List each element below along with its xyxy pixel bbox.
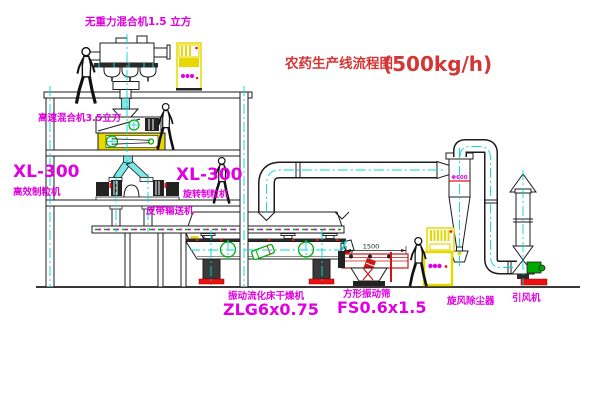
label-granulator-right-name: 旋转制粒机 [182,188,228,200]
y-chute [114,156,149,180]
exhaust-duct-dryer-to-cyclone [267,162,450,213]
title-capacity: (500kg/h) [383,52,492,76]
label-granulator-left-name: 高效制粒机 [13,186,61,198]
label-dryer-model: ZLG6x0.75 [223,300,319,319]
cad-drawing-canvas: Φ600 1500 [0,0,600,403]
label-cyclone: 旋风除尘器 [446,295,495,307]
label-screen-model: FS0.6x1.5 [337,298,426,317]
duct-reducer [437,162,450,179]
vibrating-screen: 1500 [338,240,408,286]
fluid-bed-dryer [186,234,353,285]
label-draft-fan: 引风机 [512,292,541,304]
screen-dimension-label: 1500 [363,243,380,251]
flow-diagram: Φ600 1500 [0,0,600,403]
page-title: 农药生产线流程图 [284,55,393,72]
granulators [96,178,179,201]
label-granulator-left-model: XL-300 [13,162,80,182]
belt-strip [92,226,344,233]
control-cabinet-ground [424,228,454,285]
label-high-speed-mixer: 高速混合机3.5立方 [38,112,122,124]
label-belt-conveyor: 皮带输送机 [145,205,194,217]
label-granulator-right-model: XL-300 [176,165,243,185]
label-gravity-mixer: 无重力混合机1.5 立方 [84,15,192,28]
control-cabinet-top [176,43,202,91]
